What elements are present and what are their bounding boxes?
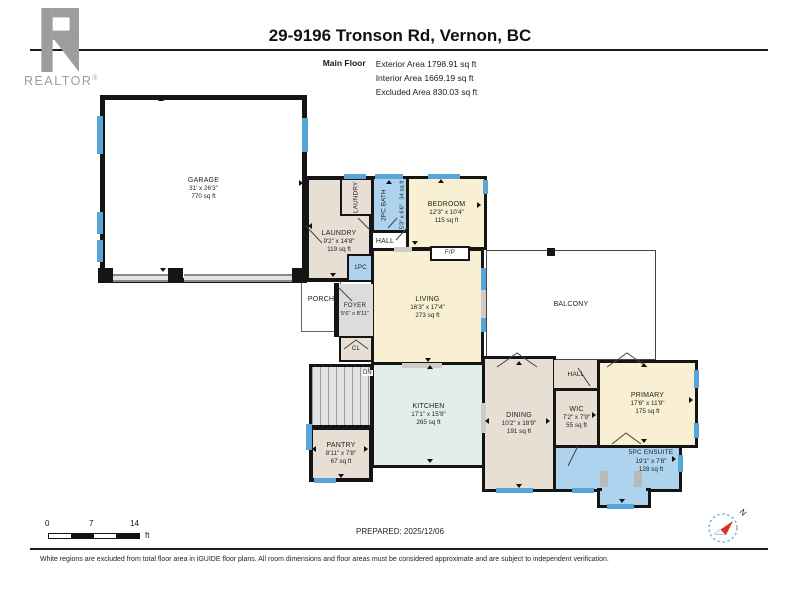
compass-icon xyxy=(706,510,742,546)
hall-lower: HALL xyxy=(554,360,598,390)
garage-door xyxy=(112,274,170,282)
stairs-dn-label: DN xyxy=(362,370,373,376)
window xyxy=(678,455,683,472)
room-dining: DINING 10'2" x 18'9" 191 sq ft xyxy=(482,356,556,492)
room-primary: PRIMARY 17'6" x 11'9" 175 sq ft xyxy=(597,360,698,448)
window xyxy=(607,504,634,509)
hall-upper-label: HALL xyxy=(370,238,400,247)
room-bedroom: BEDROOM 12'3" x 10'4" 115 sq ft xyxy=(406,176,487,250)
dim-arrow xyxy=(427,365,433,369)
window xyxy=(97,240,103,262)
dim-arrow xyxy=(330,273,336,277)
window xyxy=(97,212,103,234)
wall-patch xyxy=(602,486,646,494)
room-kitchen: KITCHEN 17'1" x 15'9" 265 sq ft xyxy=(371,362,486,468)
room-2pc-bath: 2PC BATH 5'3" x 6'6" 34 sq ft xyxy=(371,176,409,233)
window xyxy=(694,423,699,438)
opening xyxy=(394,247,412,252)
room-wic: WIC 7'2" x 7'9" 55 sq ft xyxy=(553,388,600,448)
laundry-closet: LAUNDRY xyxy=(340,178,373,216)
dim-arrow xyxy=(412,241,418,245)
window xyxy=(481,268,486,290)
shower-niche xyxy=(634,471,642,487)
window xyxy=(302,118,308,152)
window xyxy=(97,116,103,154)
dim-arrow xyxy=(516,484,522,488)
dim-arrow xyxy=(160,268,166,272)
wall-post xyxy=(98,268,113,283)
dim-arrow xyxy=(619,499,625,503)
wall-post xyxy=(168,268,183,283)
room-closet: CL xyxy=(339,336,373,362)
room-garage: GARAGE 31' x 26'3" 770 sq ft xyxy=(100,95,307,283)
window xyxy=(314,478,336,483)
dim-arrow xyxy=(299,180,303,186)
footer-divider xyxy=(30,548,768,550)
dim-arrow xyxy=(546,418,550,424)
dim-arrow xyxy=(308,223,312,229)
realtor-logo-text: REALTOR® xyxy=(24,74,112,88)
disclaimer-text: White regions are excluded from total fl… xyxy=(40,556,609,563)
window xyxy=(496,488,533,493)
fireplace: F/P xyxy=(430,246,470,261)
room-foyer: FOYER 5'6" x 8'11" xyxy=(337,284,373,336)
window xyxy=(483,180,488,194)
realtor-r-icon xyxy=(38,8,88,72)
floorplan: GARAGE 31' x 26'3" 770 sq ft PORCH BALCO… xyxy=(0,0,800,600)
dim-arrow xyxy=(672,456,676,462)
dim-arrow xyxy=(427,459,433,463)
window xyxy=(344,174,366,179)
prepared-date: PREPARED: 2025/12/06 xyxy=(0,527,800,536)
dim-arrow xyxy=(364,446,368,452)
room-living: LIVING 16'3" x 17'4" 273 sq ft xyxy=(371,248,484,368)
room-balcony: BALCONY xyxy=(486,250,656,360)
dim-arrow xyxy=(438,179,444,183)
dim-arrow xyxy=(425,358,431,362)
sliding-door-opening xyxy=(481,290,486,318)
dim-arrow xyxy=(386,180,392,184)
garage-door xyxy=(184,274,294,282)
dim-arrow xyxy=(312,446,316,452)
window xyxy=(481,318,486,332)
window xyxy=(694,370,699,388)
compass: N xyxy=(706,510,742,546)
window xyxy=(428,174,460,179)
dim-arrow xyxy=(477,202,481,208)
wall-segment xyxy=(334,283,339,337)
dim-arrow xyxy=(338,474,344,478)
dim-arrow xyxy=(158,97,164,101)
dim-arrow xyxy=(592,412,596,418)
dim-arrow xyxy=(516,361,522,365)
opening xyxy=(402,363,442,368)
room-1pc: 1PC xyxy=(347,254,374,282)
window xyxy=(572,488,594,493)
balcony-post xyxy=(547,248,555,256)
dim-arrow xyxy=(641,439,647,443)
window xyxy=(375,174,403,179)
dim-arrow xyxy=(689,397,693,403)
wall-post xyxy=(292,268,307,283)
realtor-logo: REALTOR® xyxy=(24,8,112,88)
dim-arrow xyxy=(641,363,647,367)
floorplan-page: REALTOR® 29-9196 Tronson Rd, Vernon, BC … xyxy=(0,0,800,600)
dim-arrow xyxy=(485,418,489,424)
dim-arrow xyxy=(101,183,105,189)
shower-niche xyxy=(600,471,608,487)
